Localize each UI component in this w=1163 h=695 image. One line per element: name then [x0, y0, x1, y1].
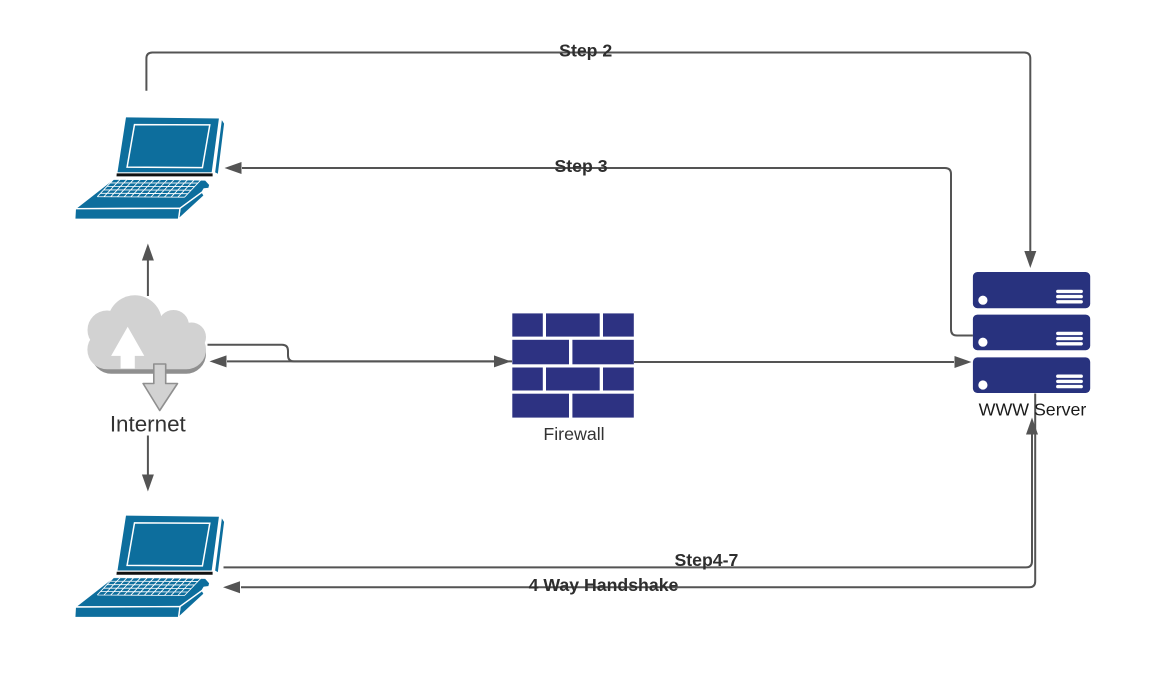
- svg-text:WWW Server: WWW Server: [979, 399, 1087, 419]
- svg-text:Step 2: Step 2: [559, 41, 612, 61]
- svg-text:Step4-7: Step4-7: [674, 550, 738, 570]
- svg-text:Firewall: Firewall: [543, 424, 604, 444]
- svg-text:4 Way Handshake: 4 Way Handshake: [529, 575, 679, 595]
- svg-text:Step 3: Step 3: [554, 156, 607, 176]
- svg-text:Internet: Internet: [110, 412, 187, 437]
